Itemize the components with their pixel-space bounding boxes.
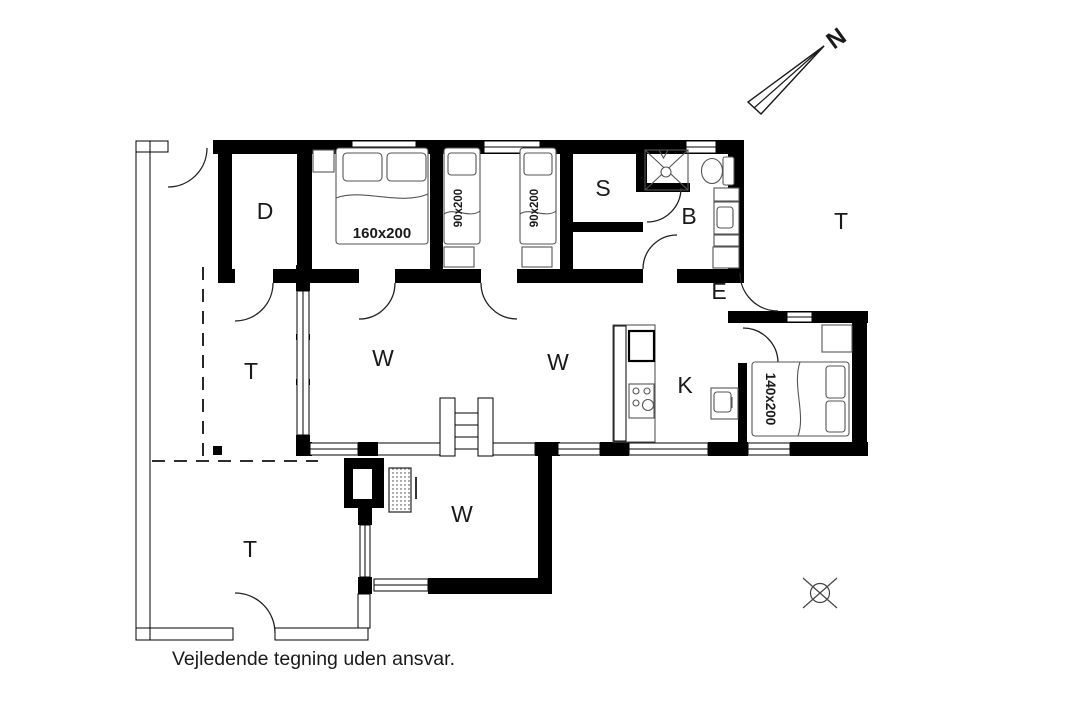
- wall-d-west: [218, 140, 232, 283]
- wall-hall-c: [395, 269, 481, 283]
- pillow: [448, 153, 476, 175]
- toilet-tank: [723, 157, 734, 185]
- wall-d-east: [297, 140, 312, 283]
- terrace-stairs: [440, 398, 493, 456]
- nightstand-right: [522, 247, 552, 267]
- wall-bedroom3-east: [852, 311, 867, 456]
- door-arc-room-d: [235, 283, 273, 321]
- terrace-edge-east-stub: [358, 594, 370, 628]
- bed-size-160x200: 160x200: [353, 225, 411, 242]
- room-label-t-west: T: [244, 358, 258, 384]
- wall-sunroom-bottom: [428, 578, 552, 594]
- window-bottom-1: [310, 443, 358, 455]
- furniture: [313, 148, 852, 512]
- north-arrow-midline: [754, 46, 824, 108]
- floor-plan-drawing: N D S B E K W W W T T T 160x200 90x200 9…: [0, 0, 1087, 724]
- crossed-circle-symbol: [803, 578, 837, 608]
- bed-size-140x200: 140x200: [763, 373, 778, 426]
- north-arrow: N: [748, 23, 851, 114]
- window-bottom-2: [558, 443, 600, 455]
- floor-plan-canvas: N D S B E K W W W T T T 160x200 90x200 9…: [0, 0, 1087, 724]
- gate-arc-terrace-north: [168, 148, 207, 187]
- door-arc-bedroom2: [481, 283, 517, 319]
- toilet-bowl: [702, 159, 723, 184]
- wall-bedroom3-west-lower: [738, 363, 747, 456]
- wall-bottom-seg4: [600, 442, 629, 456]
- terrace-edges: [136, 141, 370, 640]
- wall-bedroom2-s: [560, 140, 573, 283]
- wardrobe-bedroom3: [822, 325, 852, 352]
- wall-bedroom1-bedroom2: [430, 140, 443, 283]
- kitchen-sink-basin: [714, 392, 731, 412]
- wall-hall-b: [273, 269, 359, 283]
- wall-sunroom-west-stub: [358, 506, 372, 525]
- wall-hall-d: [517, 269, 640, 283]
- window-top-3: [686, 141, 716, 153]
- kitchen-cabinet-strip: [614, 326, 626, 441]
- wall-bottom-seg2: [358, 442, 378, 456]
- nightstand-master: [313, 150, 334, 172]
- bath-sink-basin: [717, 207, 733, 228]
- bath-cabinet-bottom: [714, 235, 739, 246]
- refrigerator: [629, 331, 654, 361]
- window-bottom-4: [748, 443, 790, 455]
- room-label-e: E: [711, 278, 726, 304]
- room-label-w-sunroom: W: [451, 501, 473, 527]
- bathroom-vanity: [713, 188, 739, 268]
- room-label-k: K: [677, 372, 693, 398]
- bath-storage-box: [713, 247, 739, 268]
- north-label: N: [822, 23, 852, 55]
- door-arc-bedroom1: [359, 283, 395, 319]
- room-label-w-living-east: W: [547, 349, 569, 375]
- shower-drain: [661, 167, 671, 177]
- window-bottom-3: [629, 443, 708, 455]
- stair-stringer-left: [440, 398, 455, 456]
- pillow: [524, 153, 552, 175]
- chimney-flue: [353, 469, 372, 499]
- room-label-t-east: T: [834, 208, 848, 234]
- wall-sunroom-west-corner: [358, 577, 372, 594]
- wall-living-west-top: [296, 265, 310, 291]
- bath-cabinet-top: [714, 188, 739, 201]
- room-label-w-living-west: W: [372, 345, 394, 371]
- kitchen-sink: [711, 388, 738, 419]
- door-arc-entrance: [740, 273, 778, 311]
- terrace-edge-south-right: [275, 628, 368, 640]
- pillow: [343, 153, 382, 181]
- gate-arc-terrace-south: [235, 593, 275, 633]
- bed-size-90x200-left: 90x200: [453, 189, 465, 227]
- window-living-west: [297, 291, 309, 435]
- cooktop: [629, 384, 654, 418]
- room-label-s: S: [595, 175, 610, 201]
- caption: Vejledende tegning uden ansvar.: [172, 648, 455, 670]
- pillow: [826, 366, 845, 398]
- wall-hall-a: [218, 269, 235, 283]
- glazed-door-section-right: [493, 443, 535, 455]
- room-label-d: D: [257, 198, 274, 224]
- window-bedroom3-top: [787, 312, 812, 322]
- pillow: [826, 401, 845, 432]
- terrace-edge-west: [136, 141, 150, 640]
- overhang-dashed-lines: [152, 267, 318, 461]
- wood-stove: [389, 468, 416, 512]
- post-marker: [213, 446, 222, 455]
- door-arc-room-s: [647, 188, 681, 222]
- wall-sunroom-east: [538, 456, 552, 594]
- room-label-b: B: [681, 203, 696, 229]
- toilet: [702, 157, 735, 185]
- door-arc-bathroom: [643, 235, 677, 269]
- terrace-edge-south-left: [136, 628, 233, 640]
- wall-b-bottom-a: [640, 269, 643, 283]
- terrace-edge-north-stub: [136, 141, 168, 152]
- window-sunroom-bottom: [374, 579, 428, 591]
- door-arc-bedroom3: [743, 328, 778, 363]
- glazed-door-section-left: [377, 443, 440, 455]
- bed-size-90x200-right: 90x200: [529, 189, 541, 227]
- window-sunroom-west: [360, 525, 370, 577]
- nightstand-left: [444, 247, 474, 267]
- wall-bottom-seg3: [535, 442, 560, 456]
- stair-stringer-right: [478, 398, 493, 456]
- room-label-t-south: T: [243, 536, 257, 562]
- wall-s-bottom: [560, 222, 643, 232]
- kitchen-counter: [613, 325, 655, 442]
- pillow: [387, 153, 426, 181]
